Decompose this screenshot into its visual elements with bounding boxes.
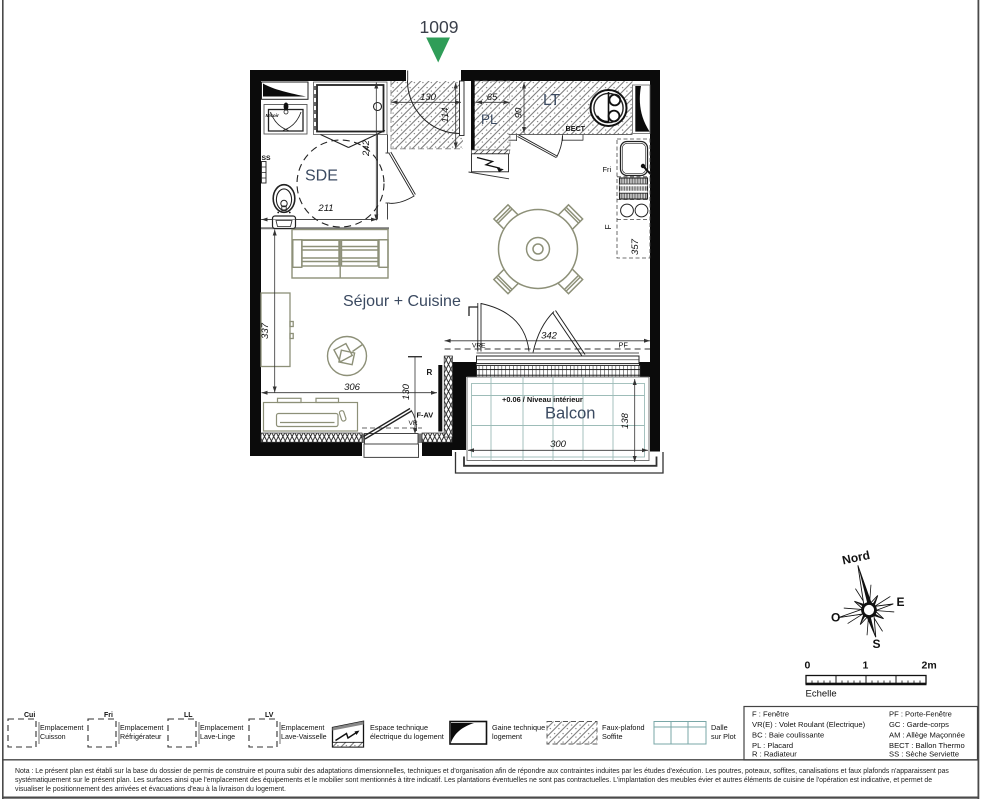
svg-text:130: 130 — [401, 383, 412, 400]
svg-text:visualiser le positionnement d: visualiser le positionnement des arrivée… — [15, 786, 286, 793]
svg-text:R : Radiateur: R : Radiateur — [752, 750, 797, 759]
svg-text:F: F — [603, 224, 613, 229]
svg-text:Echelle: Echelle — [806, 689, 837, 700]
svg-text:LV: LV — [265, 712, 274, 719]
svg-text:Soffite: Soffite — [602, 732, 623, 741]
svg-text:Lave-Linge: Lave-Linge — [200, 733, 235, 741]
svg-text:électrique du logement: électrique du logement — [370, 732, 444, 741]
svg-text:LT: LT — [543, 92, 560, 109]
svg-text:LL: LL — [184, 712, 193, 719]
svg-text:138: 138 — [620, 412, 631, 429]
svg-text:SS : Sèche Serviette: SS : Sèche Serviette — [889, 750, 959, 759]
svg-text:VR: VR — [409, 420, 418, 427]
svg-text:Fri: Fri — [104, 712, 113, 719]
svg-text:242: 242 — [361, 139, 372, 157]
svg-text:PL: PL — [481, 112, 498, 127]
svg-text:Emplacement: Emplacement — [40, 724, 83, 732]
svg-text:Faux-plafond: Faux-plafond — [602, 723, 645, 732]
svg-text:SS: SS — [262, 155, 272, 162]
svg-text:300: 300 — [550, 439, 567, 450]
svg-text:Nord: Nord — [841, 548, 871, 568]
svg-text:114: 114 — [440, 107, 451, 122]
svg-text:SDE: SDE — [305, 168, 338, 185]
svg-text:337: 337 — [260, 322, 271, 339]
svg-text:VRE: VRE — [472, 343, 486, 350]
svg-text:GC : Garde-corps: GC : Garde-corps — [889, 720, 949, 729]
svg-text:BECT: BECT — [566, 124, 586, 133]
svg-text:O: O — [831, 611, 840, 625]
svg-text:E: E — [897, 595, 905, 609]
svg-text:Espace technique: Espace technique — [370, 723, 428, 732]
svg-text:Gaine technique: Gaine technique — [492, 723, 545, 732]
svg-text:342: 342 — [541, 331, 558, 342]
svg-text:Emplacement: Emplacement — [200, 724, 243, 732]
svg-text:0: 0 — [805, 660, 811, 672]
svg-text:90: 90 — [514, 107, 525, 118]
svg-text:R: R — [427, 368, 433, 377]
svg-text:PF: PF — [619, 341, 629, 350]
svg-text:Nota : Le présent plan est éta: Nota : Le présent plan est établi sur la… — [15, 768, 949, 775]
svg-text:Réfrigérateur: Réfrigérateur — [120, 733, 162, 741]
svg-text:PF : Porte-Fenêtre: PF : Porte-Fenêtre — [889, 710, 952, 719]
svg-text:sur Plot: sur Plot — [711, 732, 736, 741]
svg-text:Dalle: Dalle — [711, 723, 728, 732]
svg-text:BC : Baie coulissante: BC : Baie coulissante — [752, 731, 824, 740]
svg-text:Cui: Cui — [24, 712, 35, 719]
svg-text:130: 130 — [420, 92, 437, 103]
svg-text:systématiquement sur le présen: systématiquement sur le présent plan. Le… — [15, 777, 932, 784]
svg-text:Séjour + Cuisine: Séjour + Cuisine — [343, 293, 461, 310]
svg-text:VR(E) : Volet Roulant (Electri: VR(E) : Volet Roulant (Electrique) — [752, 720, 866, 729]
svg-text:1009: 1009 — [420, 17, 459, 37]
svg-text:1: 1 — [863, 660, 869, 672]
svg-text:2m: 2m — [922, 660, 937, 672]
svg-text:logement: logement — [492, 732, 522, 741]
svg-text:357: 357 — [630, 238, 641, 255]
svg-text:F : Fenêtre: F : Fenêtre — [752, 710, 789, 719]
svg-text:Emplacement: Emplacement — [120, 724, 163, 732]
svg-text:211: 211 — [317, 203, 333, 214]
svg-text:Miroir: Miroir — [266, 113, 280, 119]
svg-text:Balcon: Balcon — [545, 405, 595, 423]
svg-text:+0.06 / Niveau intérieur: +0.06 / Niveau intérieur — [502, 395, 583, 404]
svg-text:AM : Allège Maçonnée: AM : Allège Maçonnée — [889, 731, 965, 740]
svg-text:306: 306 — [344, 382, 361, 393]
svg-text:Cuisson: Cuisson — [40, 733, 66, 741]
svg-text:S: S — [873, 637, 881, 651]
svg-text:F-AV: F-AV — [417, 411, 434, 420]
svg-text:65: 65 — [487, 92, 498, 103]
svg-text:Fri: Fri — [603, 165, 612, 174]
svg-text:Emplacement: Emplacement — [281, 724, 324, 732]
svg-text:Lave-Vaisselle: Lave-Vaisselle — [281, 733, 327, 741]
